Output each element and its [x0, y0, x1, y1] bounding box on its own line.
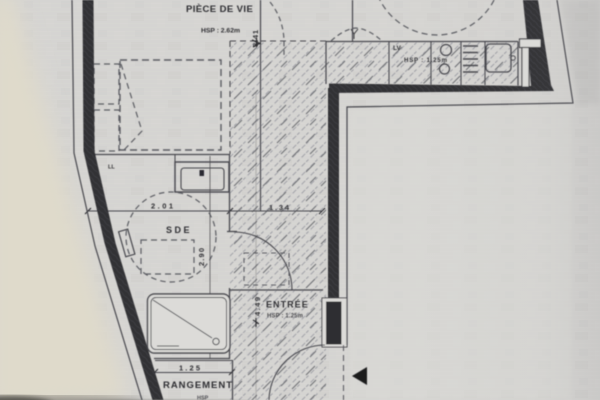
svg-text:RANGEMENT: RANGEMENT [163, 380, 232, 391]
svg-text:HSP : 2.62m: HSP : 2.62m [201, 28, 240, 35]
svg-text:LL: LL [108, 165, 115, 171]
svg-text:2.01: 2.01 [151, 202, 173, 211]
svg-text:HSP : 1.25m: HSP : 1.25m [267, 314, 303, 320]
svg-text:ENTRÉE: ENTRÉE [266, 300, 308, 310]
svg-text:2.90: 2.90 [197, 248, 206, 266]
svg-text:4.49: 4.49 [253, 297, 262, 316]
svg-text:1.34: 1.34 [269, 203, 290, 212]
svg-text:1.25: 1.25 [179, 364, 200, 373]
svg-text:HSP: HSP [197, 396, 209, 400]
svg-text:PIÈCE DE VIE: PIÈCE DE VIE [186, 4, 253, 15]
svg-text:SDE: SDE [166, 225, 190, 235]
